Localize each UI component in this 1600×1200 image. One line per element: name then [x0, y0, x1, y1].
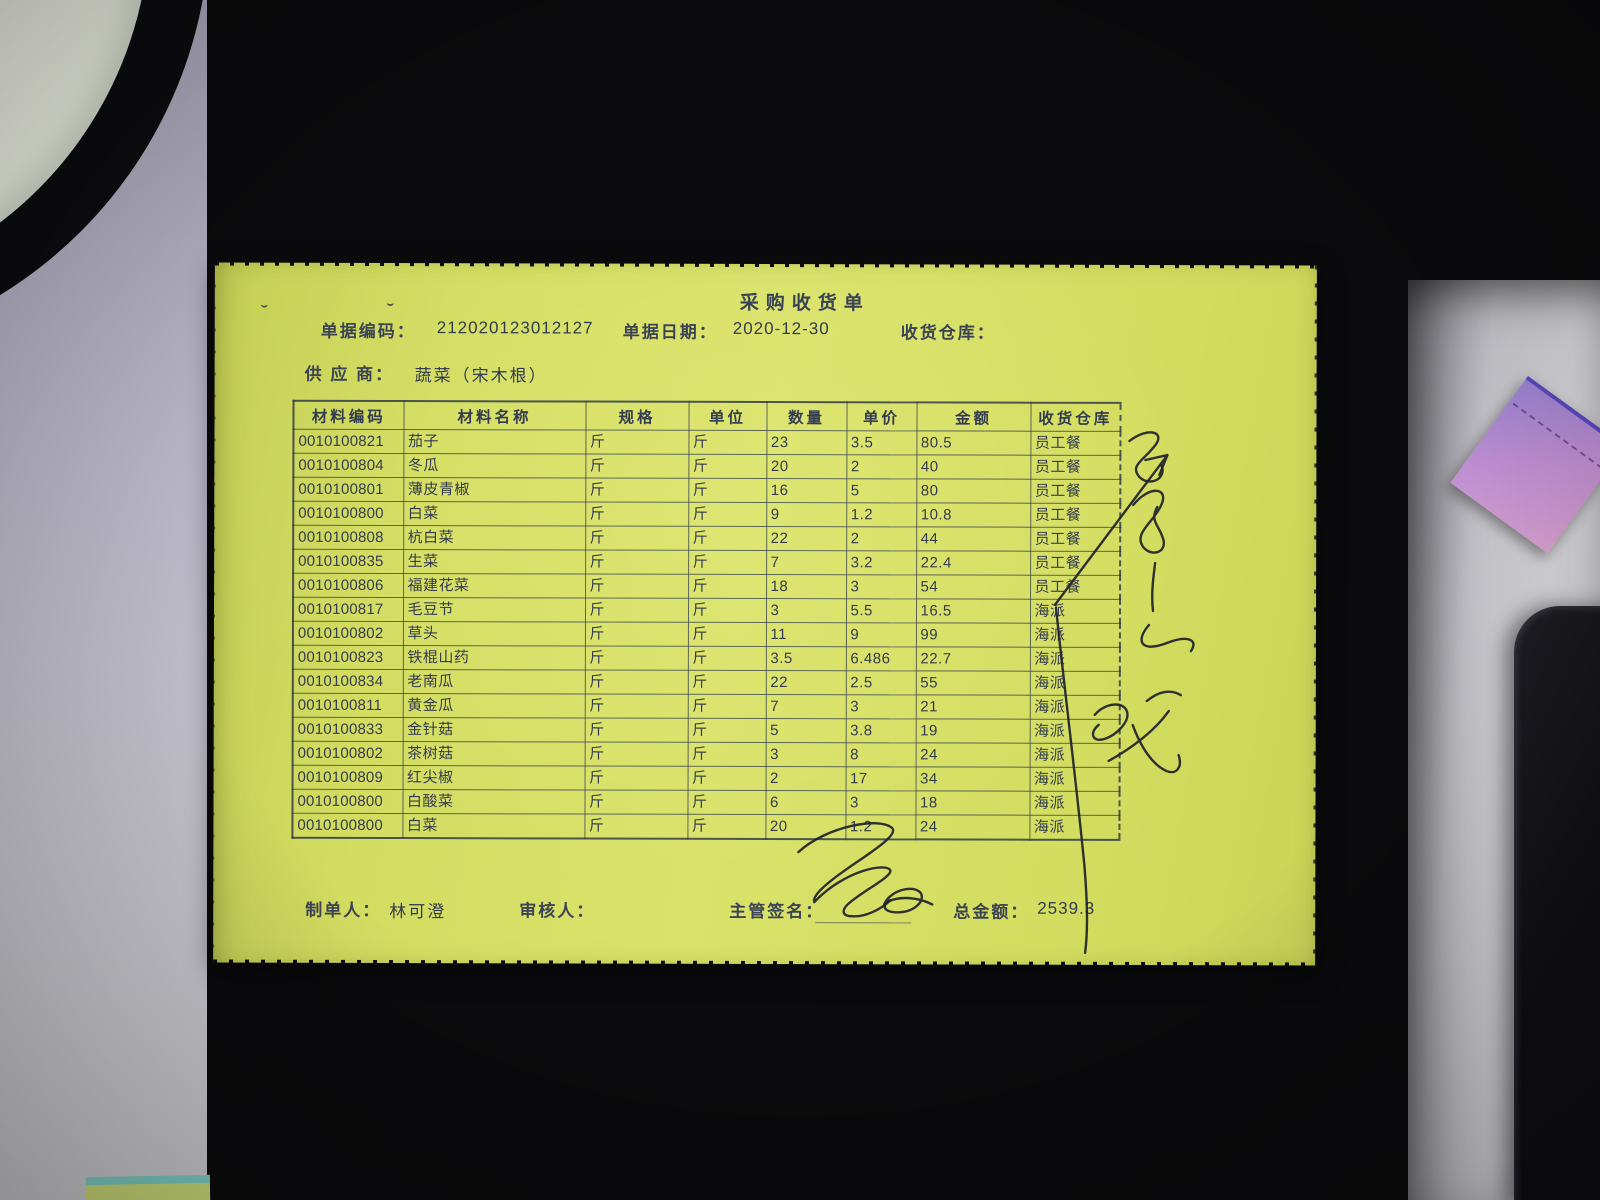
table-cell: 斤 [585, 718, 688, 742]
table-cell: 海派 [1030, 767, 1120, 791]
table-cell: 6.486 [846, 647, 916, 671]
table-header-cell: 规格 [585, 402, 688, 431]
table-cell: 斤 [688, 694, 766, 718]
tilde-mark [1147, 692, 1181, 701]
table-cell: 斤 [585, 454, 688, 478]
table-cell: 斤 [688, 478, 766, 502]
table-cell: 0010100811 [293, 693, 403, 717]
table-row: 0010100801薄皮青椒斤斤16580员工餐 [293, 477, 1120, 503]
warehouse-label: 收货仓库： [901, 318, 996, 343]
total-value: 2539.3 [1037, 899, 1095, 919]
table-cell: 9 [766, 503, 846, 527]
table-cell: 44 [916, 527, 1030, 551]
table-cell: 0010100806 [293, 573, 403, 597]
print-mark [261, 301, 268, 308]
table-cell: 20 [765, 815, 845, 840]
table-cell: 5 [846, 479, 916, 503]
teal-sticky-note [86, 1175, 210, 1200]
table-cell: 1.2 [845, 815, 915, 840]
table-row: 0010100802草头斤斤11999海派 [293, 621, 1120, 647]
table-cell: 80 [916, 479, 1030, 503]
table-row: 0010100802茶树菇斤斤3824海派 [293, 741, 1120, 767]
table-cell: 0010100802 [293, 741, 403, 765]
table-cell: 17 [846, 767, 916, 791]
table-cell: 0010100835 [293, 549, 403, 573]
signer-label: 主管签名： [729, 897, 824, 922]
table-header-cell: 单价 [846, 402, 916, 431]
table-header-cell: 材料编码 [293, 401, 403, 430]
table-cell: 斤 [688, 670, 766, 694]
receipt-table: 材料编码材料名称规格单位数量单价金额收货仓库 0010100821茄子斤斤233… [291, 400, 1121, 841]
table-cell: 斤 [688, 622, 766, 646]
photo-scene: 采购收货单 单据编码： 212020123012127 单据日期： 2020-1… [0, 0, 1600, 1200]
table-cell: 斤 [688, 598, 766, 622]
table-cell: 斤 [585, 646, 688, 670]
table-cell: 斤 [687, 790, 765, 814]
table-cell: 24 [916, 743, 1030, 767]
table-cell: 斤 [688, 430, 766, 454]
table-cell: 白菜 [403, 502, 585, 526]
table-cell: 红尖椒 [403, 766, 585, 790]
table-cell: 0010100804 [293, 453, 403, 477]
table-cell: 白菜 [402, 814, 584, 839]
table-cell: 茄子 [403, 430, 585, 454]
table-cell: 福建花菜 [403, 574, 585, 598]
table-cell: 员工餐 [1030, 527, 1120, 551]
table-cell: 1.2 [846, 503, 916, 527]
table-cell: 斤 [585, 526, 688, 550]
table-row: 0010100833金针菇斤斤53.819海派 [293, 717, 1120, 743]
supplier-label: 供 应 商： [305, 360, 395, 385]
signature-stroke [884, 889, 932, 913]
table-cell: 斤 [585, 430, 688, 454]
perforation-left [211, 263, 216, 963]
table-cell: 99 [916, 623, 1030, 647]
table-row: 0010100821茄子斤斤233.580.5员工餐 [293, 429, 1120, 455]
doc-date-value: 2020-12-30 [733, 319, 830, 339]
table-cell: 海派 [1029, 815, 1119, 840]
table-cell: 斤 [585, 502, 688, 526]
perforation-right [1313, 265, 1319, 965]
table-cell: 0010100800 [292, 813, 402, 838]
table-cell: 22.4 [916, 551, 1030, 575]
table-row: 0010100835生菜斤斤73.222.4员工餐 [293, 549, 1120, 575]
doc-code-label: 单据编码： [321, 317, 416, 342]
table-cell: 黄金瓜 [403, 694, 585, 718]
auditor-label: 审核人： [519, 896, 595, 921]
table-cell: 斤 [584, 790, 687, 814]
table-cell: 斤 [585, 622, 688, 646]
supplier-value: 蔬菜（宋木根） [415, 361, 548, 386]
table-cell: 杭白菜 [403, 526, 585, 550]
table-cell: 斤 [585, 598, 688, 622]
table-cell: 斤 [585, 574, 688, 598]
table-cell: 22 [766, 527, 846, 551]
print-mark [387, 299, 394, 306]
table-cell: 薄皮青椒 [403, 478, 585, 502]
table-cell: 3 [766, 599, 846, 623]
table-header-cell: 数量 [766, 402, 846, 431]
perforation-bottom [213, 960, 1315, 968]
table-cell: 冬瓜 [403, 454, 585, 478]
table-cell: 海派 [1030, 599, 1120, 623]
table-cell: 24 [915, 815, 1029, 840]
table-cell: 0010100801 [293, 477, 403, 501]
table-cell: 斤 [688, 550, 766, 574]
table-cell: 斤 [688, 766, 766, 790]
table-cell: 3 [846, 575, 916, 599]
table-cell: 斤 [585, 694, 688, 718]
receipt-table-body: 0010100821茄子斤斤233.580.5员工餐0010100804冬瓜斤斤… [292, 429, 1120, 840]
table-header-cell: 材料名称 [403, 401, 585, 430]
table-cell: 老南瓜 [403, 670, 585, 694]
table-cell: 3 [846, 695, 916, 719]
table-cell: 5 [766, 719, 846, 743]
table-cell: 3.2 [846, 551, 916, 575]
table-cell: 斤 [688, 646, 766, 670]
table-header-cell: 收货仓库 [1030, 403, 1120, 432]
signature-line [815, 922, 911, 923]
table-header-cell: 金额 [916, 402, 1030, 431]
table-row: 0010100817毛豆节斤斤35.516.5海派 [293, 597, 1120, 623]
table-cell: 生菜 [403, 550, 585, 574]
table-cell: 2 [766, 767, 846, 791]
table-cell: 22 [766, 671, 846, 695]
table-cell: 员工餐 [1030, 479, 1120, 503]
table-cell: 斤 [688, 502, 766, 526]
table-row: 0010100808杭白菜斤斤22244员工餐 [293, 525, 1120, 551]
table-cell: 海派 [1030, 695, 1120, 719]
table-cell: 0010100808 [293, 525, 403, 549]
table-cell: 40 [916, 455, 1030, 479]
table-cell: 0010100802 [293, 621, 403, 645]
table-cell: 7 [766, 695, 846, 719]
table-cell: 斤 [688, 718, 766, 742]
table-cell: 6 [765, 791, 845, 815]
table-cell: 斤 [688, 742, 766, 766]
table-cell: 海派 [1030, 647, 1120, 671]
vertical-cursive-scribble [1129, 432, 1194, 651]
table-cell: 8 [846, 743, 916, 767]
table-cell: 斤 [584, 814, 687, 839]
table-cell: 22.7 [916, 647, 1030, 671]
table-cell: 海派 [1030, 623, 1120, 647]
table-cell: 海派 [1029, 791, 1119, 815]
table-cell: 3.5 [846, 431, 916, 455]
table-cell: 0010100800 [293, 501, 403, 525]
table-cell: 23 [766, 431, 846, 455]
table-cell: 21 [916, 695, 1030, 719]
maker-label: 制单人： [305, 896, 381, 921]
doc-title: 采购收货单 [635, 288, 975, 316]
table-cell: 斤 [687, 814, 765, 839]
maker-value: 林可澄 [389, 897, 446, 922]
table-row: 0010100834老南瓜斤斤222.555海派 [293, 669, 1120, 695]
table-cell: 员工餐 [1030, 431, 1120, 455]
table-cell: 斤 [585, 766, 688, 790]
table-cell: 斤 [688, 574, 766, 598]
table-cell: 草头 [403, 622, 585, 646]
table-cell: 0010100833 [293, 717, 403, 741]
table-cell: 员工餐 [1030, 575, 1120, 599]
table-cell: 34 [916, 767, 1030, 791]
table-cell: 18 [915, 791, 1029, 815]
table-row: 0010100800白菜斤斤91.210.8员工餐 [293, 501, 1120, 527]
table-cell: 斤 [688, 454, 766, 478]
table-cell: 员工餐 [1030, 551, 1120, 575]
table-cell: 白酸菜 [402, 790, 584, 814]
doc-code-value: 212020123012127 [437, 318, 594, 338]
table-cell: 18 [766, 575, 846, 599]
table-row: 0010100800白菜斤斤201.224海派 [292, 813, 1119, 840]
table-cell: 11 [766, 623, 846, 647]
table-cell: 海派 [1030, 743, 1120, 767]
table-cell: 16.5 [916, 599, 1030, 623]
perforation-top [215, 261, 1317, 269]
table-cell: 0010100800 [292, 789, 402, 813]
table-cell: 20 [766, 455, 846, 479]
table-cell: 0010100821 [293, 429, 403, 453]
table-row: 0010100804冬瓜斤斤20240员工餐 [293, 453, 1120, 479]
table-cell: 0010100834 [293, 669, 403, 693]
total-label: 总金额： [953, 897, 1029, 922]
table-cell: 斤 [688, 526, 766, 550]
table-cell: 3.5 [766, 647, 846, 671]
table-row: 0010100809红尖椒斤斤21734海派 [293, 765, 1120, 791]
doc-date-label: 单据日期： [623, 318, 718, 343]
table-cell: 9 [846, 623, 916, 647]
receipt-paper: 采购收货单 单据编码： 212020123012127 单据日期： 2020-1… [213, 263, 1317, 966]
table-row: 0010100806福建花菜斤斤18354员工餐 [293, 573, 1120, 599]
table-cell: 0010100817 [293, 597, 403, 621]
table-cell: 斤 [585, 550, 688, 574]
table-cell: 斤 [585, 742, 688, 766]
table-cell: 5.5 [846, 599, 916, 623]
table-cell: 0010100823 [293, 645, 403, 669]
table-cell: 54 [916, 575, 1030, 599]
table-cell: 毛豆节 [403, 598, 585, 622]
table-cell: 3.8 [846, 719, 916, 743]
table-header-cell: 单位 [688, 402, 766, 431]
table-cell: 2 [846, 527, 916, 551]
table-cell: 0010100809 [293, 765, 403, 789]
table-row: 0010100823铁棍山药斤斤3.56.48622.7海派 [293, 645, 1120, 671]
table-cell: 金针菇 [403, 718, 585, 742]
table-cell: 3 [845, 791, 915, 815]
table-cell: 海派 [1030, 719, 1120, 743]
table-cell: 16 [766, 479, 846, 503]
table-cell: 19 [916, 719, 1030, 743]
table-cell: 55 [916, 671, 1030, 695]
table-cell: 员工餐 [1030, 455, 1120, 479]
table-row: 0010100800白酸菜斤斤6318海派 [292, 789, 1119, 815]
table-cell: 2 [846, 455, 916, 479]
table-row: 0010100811黄金瓜斤斤7321海派 [293, 693, 1120, 719]
table-cell: 7 [766, 551, 846, 575]
table-header-row: 材料编码材料名称规格单位数量单价金额收货仓库 [293, 401, 1120, 432]
table-cell: 斤 [585, 670, 688, 694]
table-cell: 斤 [585, 478, 688, 502]
table-cell: 3 [766, 743, 846, 767]
table-cell: 茶树菇 [403, 742, 585, 766]
table-cell: 铁棍山药 [403, 646, 585, 670]
table-cell: 80.5 [916, 431, 1030, 455]
table-cell: 员工餐 [1030, 503, 1120, 527]
table-cell: 10.8 [916, 503, 1030, 527]
table-cell: 2.5 [846, 671, 916, 695]
table-cell: 海派 [1030, 671, 1120, 695]
dark-device [1514, 606, 1600, 1200]
